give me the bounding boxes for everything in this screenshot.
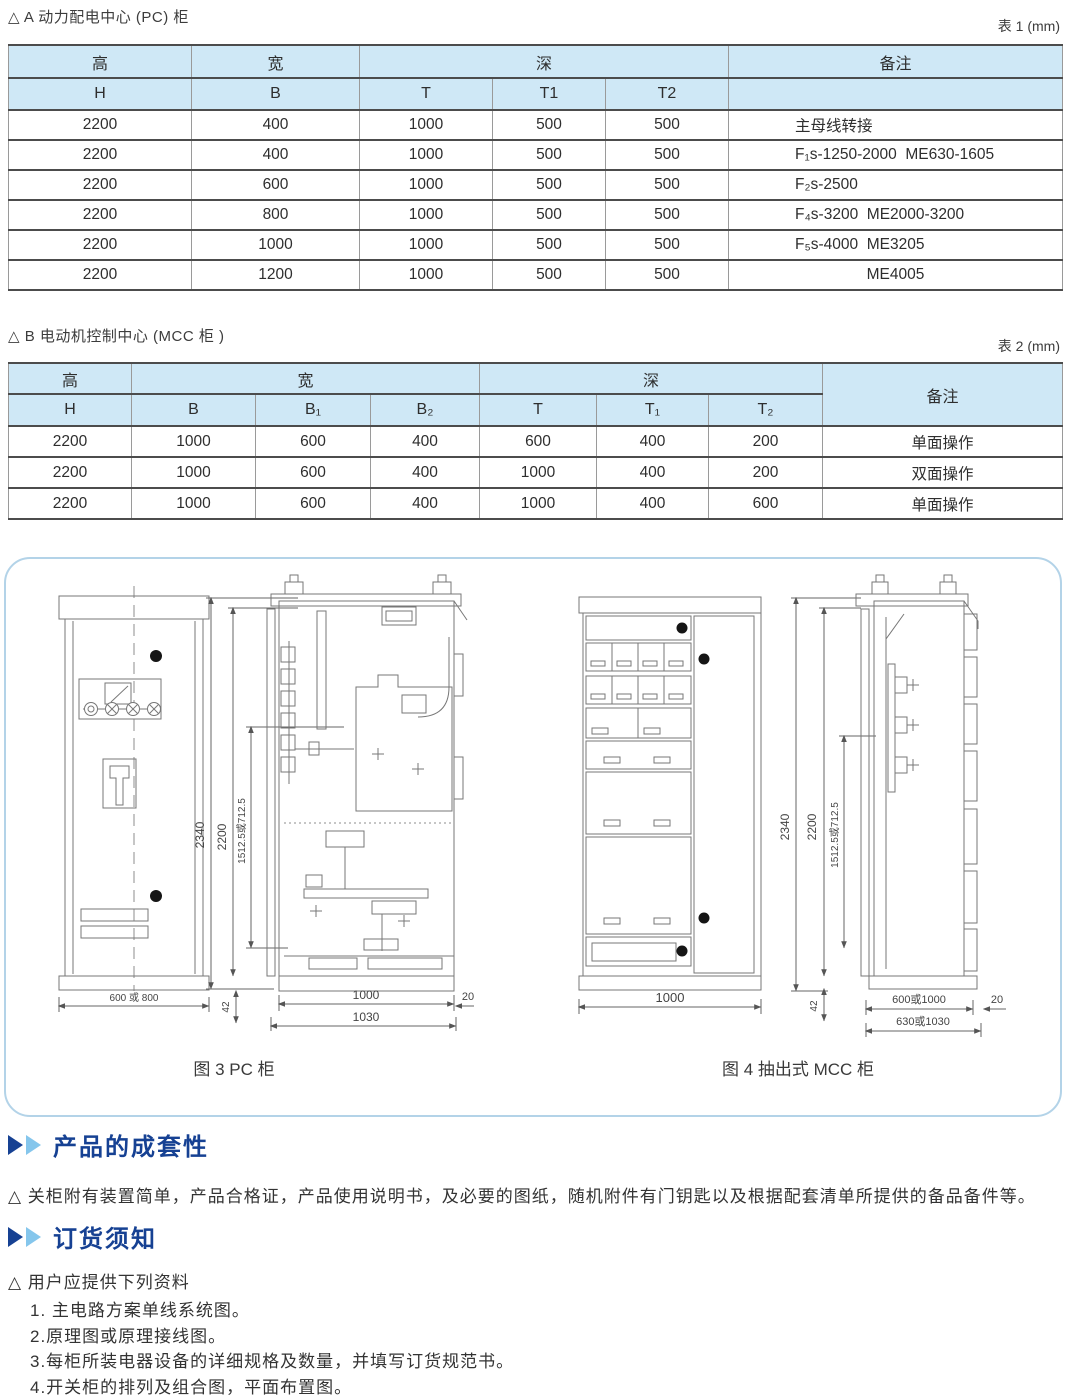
drawings-panel: 600 或 800 2340 2200 1512.5或712.5 xyxy=(4,557,1062,1117)
figure4-caption: 图 4 抽出式 MCC 柜 xyxy=(722,1060,874,1079)
arrow-right-icon xyxy=(26,1135,41,1155)
dimension-label: 20 xyxy=(991,994,1003,1006)
table-row: 220012001000500500ME4005 xyxy=(9,260,1063,290)
technical-drawings: 600 或 800 2340 2200 1512.5或712.5 xyxy=(6,559,1060,1115)
section-a-title: △ A 动力配电中心 (PC) 柜 xyxy=(8,6,189,27)
lock-dot xyxy=(150,650,162,662)
col-width: 宽 xyxy=(192,45,360,78)
table1-header-row-2: H B T T1 T2 xyxy=(9,78,1063,110)
arrow-right-icon xyxy=(26,1227,41,1247)
arrow-right-icon xyxy=(8,1135,23,1155)
catalog-page: △ A 动力配电中心 (PC) 柜 表 1 (mm) 高 宽 深 备注 H B … xyxy=(0,0,1070,1395)
section-b-title: △ B 电动机控制中心 (MCC 柜 ) xyxy=(8,325,225,346)
pc-front-view: 600 或 800 xyxy=(59,586,209,1012)
col-t1: T1 xyxy=(493,78,606,110)
table-row: 220010006004001000400600单面操作 xyxy=(9,488,1063,519)
col-width: 宽 xyxy=(132,363,480,394)
col-height: 高 xyxy=(9,45,192,78)
mcc-front-view: 1000 xyxy=(579,597,761,1014)
completeness-paragraph: △ 关柜附有装置简单，产品合格证，产品使用说明书，及必要的图纸，随机附件有门钥匙… xyxy=(8,1182,1062,1207)
list-item: 3.每柜所装电器设备的详细规格及数量，并填写订货规范书。 xyxy=(30,1349,514,1375)
lock-dot xyxy=(677,946,688,957)
heading-text: 订货须知 xyxy=(53,1219,157,1254)
dimension-label: 20 xyxy=(462,991,474,1003)
lock-dot xyxy=(150,890,162,902)
dimension-label: 1512.5或712.5 xyxy=(829,802,841,868)
busbar-connectors xyxy=(895,677,919,773)
col-t: T xyxy=(360,78,493,110)
col-depth: 深 xyxy=(480,363,823,394)
lock-dot xyxy=(677,623,688,634)
table2-header-row-1: 高 宽 深 备注 xyxy=(9,363,1063,394)
dimension-label: 630或1030 xyxy=(896,1015,950,1028)
col-height: 高 xyxy=(9,363,132,394)
dimension-label: 42 xyxy=(221,1001,232,1013)
mcc-cabinet-dimension-table: 高 宽 深 备注 H B B₁ B₂ T T₁ T₂ 2200100060040… xyxy=(8,362,1063,520)
table1-tag: 表 1 (mm) xyxy=(998,16,1060,36)
list-item: 4.开关柜的排列及组合图，平面布置图。 xyxy=(30,1375,514,1395)
figure3-caption: 图 3 PC 柜 xyxy=(193,1060,274,1079)
dimension-label: 2340 xyxy=(778,813,792,840)
dimension-label: 1030 xyxy=(353,1010,380,1024)
dimension-label: 600或1000 xyxy=(892,993,946,1006)
list-item: 2.原理图或原理接线图。 xyxy=(30,1324,514,1350)
dimension-label: 2340 xyxy=(193,821,207,848)
mcc-side-view: 2340 2200 1512.5或712.5 xyxy=(778,575,1006,1037)
section-heading-completeness: 产品的成套性 xyxy=(8,1127,209,1162)
col-note: 备注 xyxy=(729,45,1063,78)
dimension-label: 42 xyxy=(809,1000,820,1012)
dimension-label: 1000 xyxy=(353,988,380,1002)
table-row: 22008001000500500F₄s-3200 ME2000-3200 xyxy=(9,200,1063,230)
table-row: 220010006004001000400200双面操作 xyxy=(9,457,1063,488)
table-row: 220010001000500500F₅s-4000 ME3205 xyxy=(9,230,1063,260)
drawer-profiles xyxy=(964,614,977,971)
dimension-label: 1512.5或712.5 xyxy=(236,798,248,864)
lock-dot xyxy=(699,654,710,665)
pc-cabinet-dimension-table: 高 宽 深 备注 H B T T1 T2 22004001000500500主母… xyxy=(8,44,1063,291)
table2-tag: 表 2 (mm) xyxy=(998,336,1060,356)
col-t2: T2 xyxy=(606,78,729,110)
table1-header-row-1: 高 宽 深 备注 xyxy=(9,45,1063,78)
table-row: 22004001000500500主母线转接 xyxy=(9,110,1063,140)
col-note-empty xyxy=(729,78,1063,110)
table-row: 22001000600400600400200单面操作 xyxy=(9,426,1063,457)
heading-text: 产品的成套性 xyxy=(53,1127,209,1162)
dimension-label: 1000 xyxy=(656,990,685,1005)
col-h: H xyxy=(9,78,192,110)
col-note: 备注 xyxy=(823,363,1063,426)
dimension-label: 2200 xyxy=(215,823,229,850)
section-heading-ordering: 订货须知 xyxy=(8,1219,157,1254)
dimension-label: 2200 xyxy=(805,813,819,840)
arrow-right-icon xyxy=(8,1227,23,1247)
pc-side-view: 2340 2200 1512.5或712.5 xyxy=(193,575,474,1031)
ordering-list: 1. 主电路方案单线系统图。 2.原理图或原理接线图。 3.每柜所装电器设备的详… xyxy=(30,1298,514,1395)
dimension-label: 600 或 800 xyxy=(110,992,159,1004)
col-b: B xyxy=(192,78,360,110)
ordering-intro: △ 用户应提供下列资料 xyxy=(8,1268,190,1293)
table-row: 22004001000500500F₁s-1250-2000 ME630-160… xyxy=(9,140,1063,170)
table-row: 22006001000500500F₂s-2500 xyxy=(9,170,1063,200)
lock-dot xyxy=(699,913,710,924)
list-item: 1. 主电路方案单线系统图。 xyxy=(30,1298,514,1324)
col-depth: 深 xyxy=(360,45,729,78)
